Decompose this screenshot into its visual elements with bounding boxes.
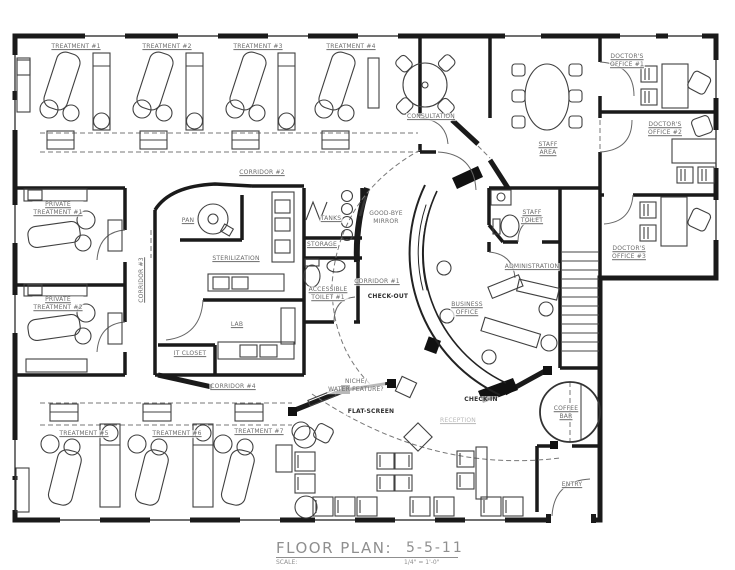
room-label-staff-area: STAFF AREA (537, 141, 558, 157)
date-underline (398, 557, 458, 558)
room-label-consultation: CONSULTATION (406, 113, 456, 121)
room-label-check-out: CHECK-OUT (367, 293, 409, 301)
room-label-business-office: BUSINESS OFFICE (450, 301, 484, 317)
room-label-corridor-3: CORRIDOR #3 (138, 256, 146, 303)
room-label-reception: RECEPTION (439, 417, 477, 425)
room-label-check-in: CHECK-IN (463, 396, 498, 404)
room-labels-layer: TREATMENT #1TREATMENT #2TREATMENT #3TREA… (0, 0, 735, 570)
room-label-sterilization: STERILIZATION (211, 255, 260, 263)
room-label-treatment-5: TREATMENT #5 (58, 430, 109, 438)
scale-label: SCALE: (276, 559, 297, 566)
room-label-corridor-4: CORRIDOR #4 (209, 383, 256, 391)
room-label-storage: STORAGE (306, 241, 338, 249)
room-label-treatment-6: TREATMENT #6 (151, 430, 202, 438)
room-label-corridor-2: CORRIDOR #2 (238, 169, 285, 177)
room-label-doctors-office-3: DOCTOR'S OFFICE #3 (611, 245, 647, 261)
room-label-goodbye-mirror: GOOD-BYE MIRROR (368, 210, 404, 226)
room-label-treatment-4: TREATMENT #4 (325, 43, 376, 51)
room-label-staff-toilet: STAFF TOILET (520, 209, 544, 225)
room-label-doctors-office-2: DOCTOR'S OFFICE #2 (647, 121, 683, 137)
room-label-treatment-2: TREATMENT #2 (141, 43, 192, 51)
room-label-flat-screen: FLAT-SCREEN (347, 408, 396, 416)
drawing-date: 5-5-11 (406, 540, 464, 556)
room-label-tanks: TANKS (320, 215, 343, 223)
room-label-entry: ENTRY (561, 481, 583, 489)
drawing-title: FLOOR PLAN: (276, 539, 392, 557)
room-label-private-treatment-2: PRIVATE TREATMENT #2 (32, 296, 83, 312)
room-label-lab: LAB (230, 321, 244, 329)
room-label-pan: PAN (181, 217, 195, 225)
room-label-corridor-1: CORRIDOR #1 (353, 278, 400, 286)
room-label-accessible-toilet-1: ACCESSIBLE TOILET #1 (308, 286, 349, 302)
room-label-private-treatment-1: PRIVATE TREATMENT #1 (32, 201, 83, 217)
room-label-coffee-bar: COFFEE BAR (553, 405, 580, 421)
room-label-it-closet: IT CLOSET (173, 350, 207, 358)
room-label-treatment-3: TREATMENT #3 (232, 43, 283, 51)
room-label-administration: ADMINISTRATION (504, 263, 560, 271)
room-label-treatment-1: TREATMENT #1 (50, 43, 101, 51)
floor-plan-page: TREATMENT #1TREATMENT #2TREATMENT #3TREA… (0, 0, 735, 570)
room-label-niche-water-feature: NICHE/ WATER FEATURE? (327, 378, 385, 394)
room-label-doctors-office-1: DOCTOR'S OFFICE #1 (609, 53, 645, 69)
room-label-treatment-7: TREATMENT #7 (233, 428, 284, 436)
scale-value: 1/4" = 1'-0" (404, 559, 439, 566)
